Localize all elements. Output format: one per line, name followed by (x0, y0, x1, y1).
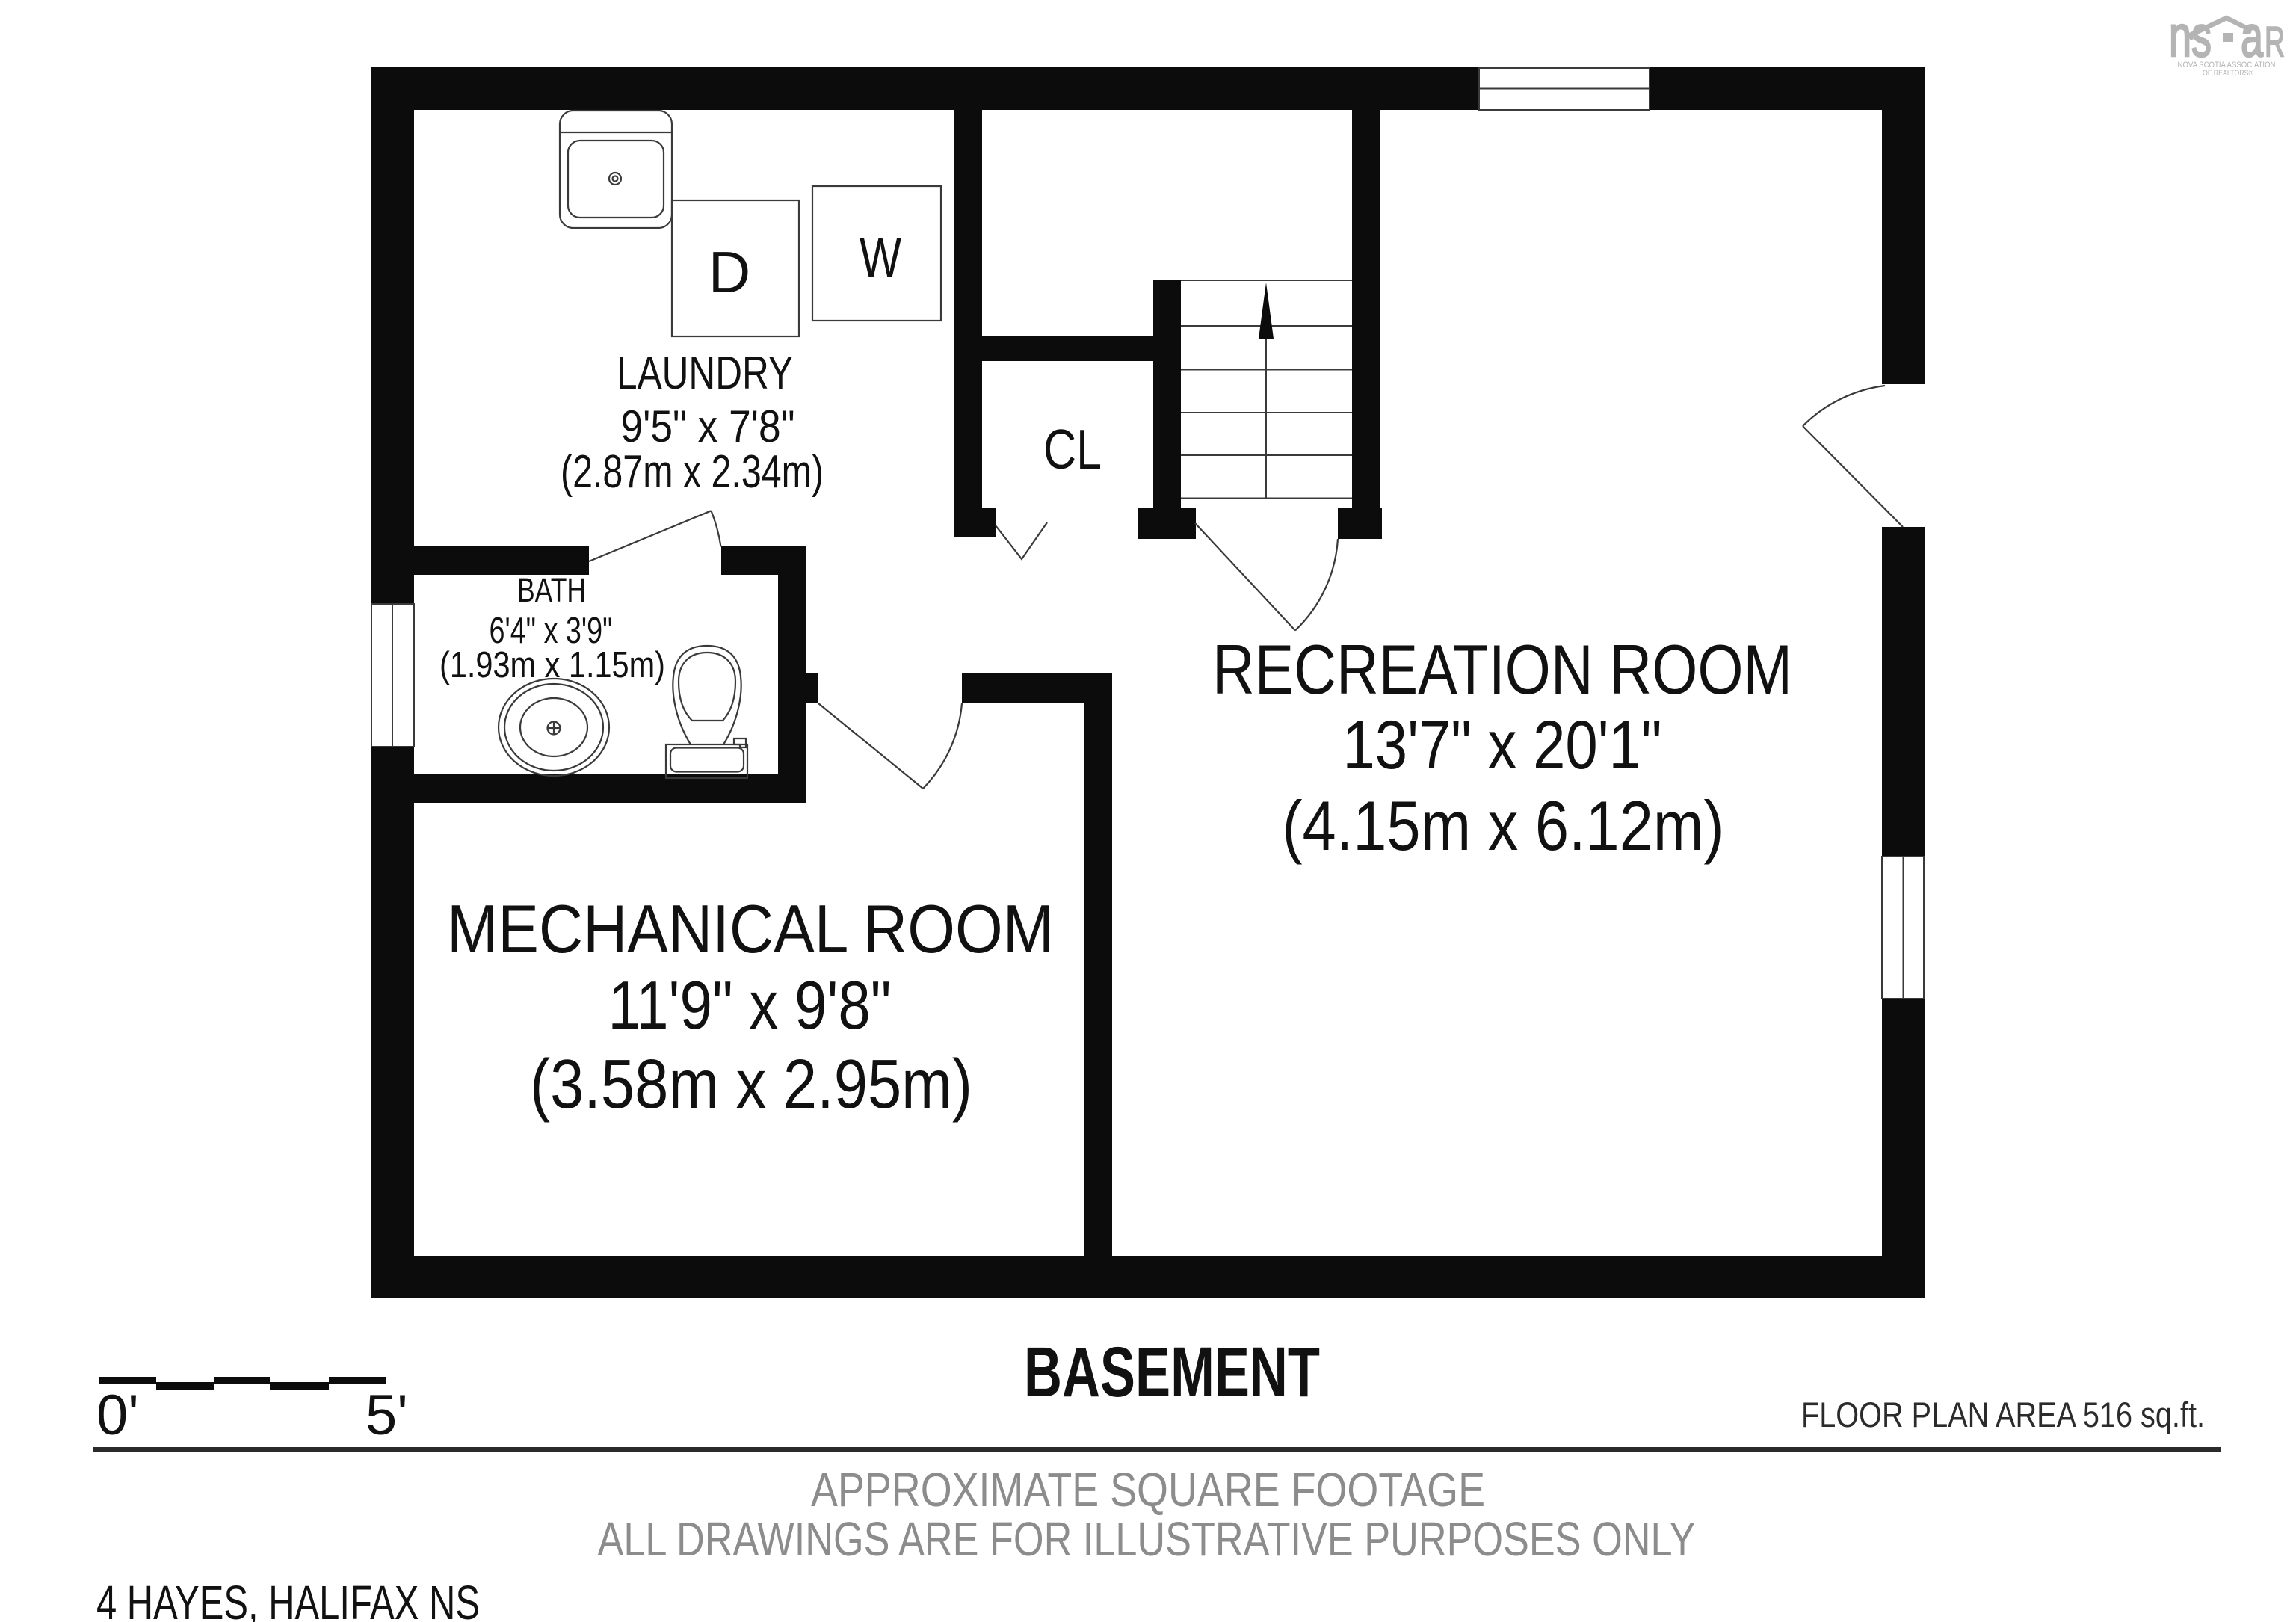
svg-text:BASEMENT: BASEMENT (1024, 1333, 1320, 1412)
svg-text:0': 0' (96, 1384, 139, 1447)
svg-text:11'9" x 9'8": 11'9" x 9'8" (608, 968, 892, 1043)
svg-text:OF REALTORS®: OF REALTORS® (2203, 69, 2253, 78)
svg-text:a: a (2241, 3, 2263, 69)
svg-text:W: W (860, 226, 901, 289)
svg-text:(4.15m x 6.12m): (4.15m x 6.12m) (1283, 786, 1724, 865)
svg-text:5': 5' (365, 1384, 408, 1447)
svg-text:R: R (2265, 18, 2285, 66)
svg-text:(2.87m x 2.34m): (2.87m x 2.34m) (561, 446, 824, 498)
svg-text:BATH: BATH (517, 571, 586, 609)
svg-text:APPROXIMATE SQUARE FOOTAGE: APPROXIMATE SQUARE FOOTAGE (811, 1463, 1485, 1517)
svg-text:CL: CL (1043, 418, 1102, 481)
svg-text:FLOOR PLAN AREA 516 sq.ft.: FLOOR PLAN AREA 516 sq.ft. (1801, 1395, 2205, 1434)
svg-text:D: D (709, 239, 750, 305)
svg-text:ALL DRAWINGS ARE FOR ILLUSTRAT: ALL DRAWINGS ARE FOR ILLUSTRATIVE PURPOS… (598, 1512, 1696, 1566)
svg-text:RECREATION ROOM: RECREATION ROOM (1212, 630, 1792, 709)
svg-text:LAUNDRY: LAUNDRY (617, 348, 793, 399)
svg-text:4 HAYES, HALIFAX NS: 4 HAYES, HALIFAX NS (96, 1576, 480, 1622)
svg-text:(1.93m x 1.15m): (1.93m x 1.15m) (439, 645, 665, 685)
svg-text:(3.58m x 2.95m): (3.58m x 2.95m) (530, 1045, 972, 1123)
svg-text:MECHANICAL ROOM: MECHANICAL ROOM (447, 892, 1054, 967)
svg-text:13'7" x 20'1": 13'7" x 20'1" (1343, 707, 1662, 783)
svg-text:9'5" x 7'8": 9'5" x 7'8" (621, 401, 795, 451)
